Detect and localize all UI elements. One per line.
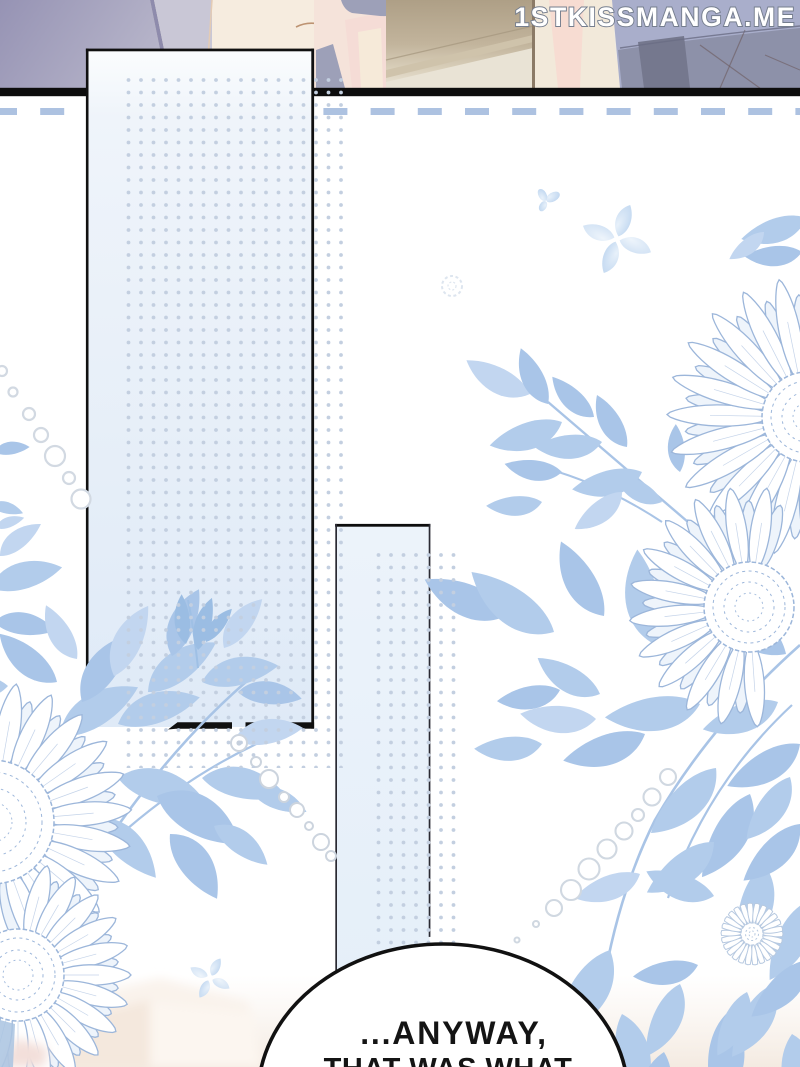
svg-text:1STKISSMANGA.ME: 1STKISSMANGA.ME (514, 2, 796, 32)
svg-text:...ANYWAY,: ...ANYWAY, (360, 1015, 548, 1051)
svg-text:THAT WAS WHAT: THAT WAS WHAT (324, 1053, 573, 1067)
